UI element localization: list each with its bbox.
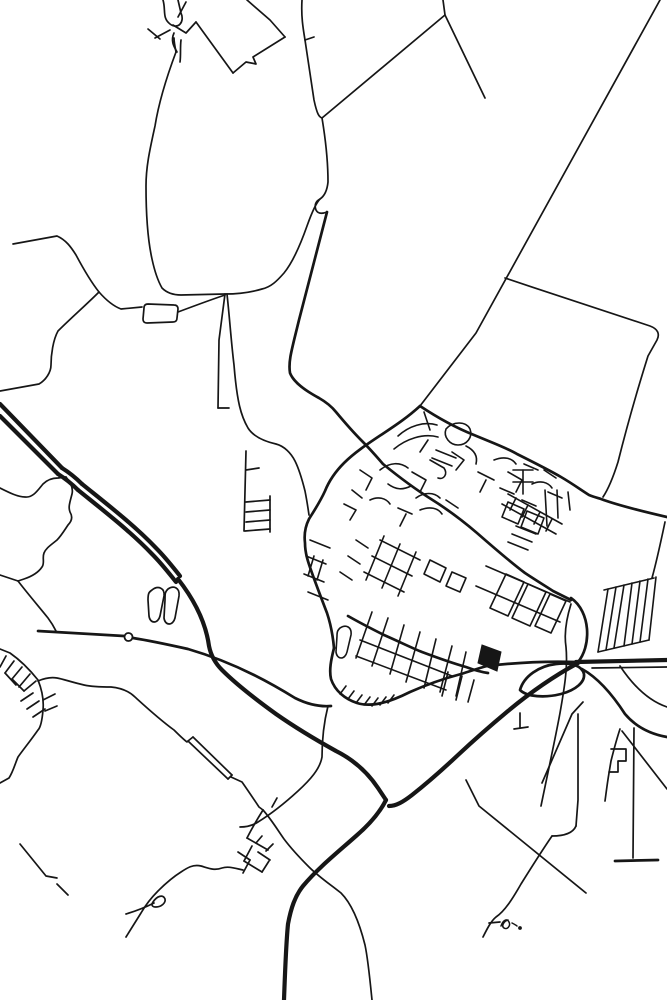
town-streets-path (340, 686, 346, 694)
town-streets-path (440, 646, 452, 692)
rural-roads-path (164, 587, 179, 624)
rural-roads-path (256, 836, 262, 843)
town-streets-path (348, 556, 360, 564)
rural-roads-path (143, 304, 178, 323)
town-streets-path (424, 639, 436, 688)
signature-glyph-path (512, 923, 517, 926)
rural-roads-path (245, 529, 270, 531)
rural-roads-path (0, 292, 99, 391)
rural-roads-path (152, 896, 165, 907)
map-canvas (0, 0, 667, 1000)
motorways-path (82, 484, 180, 576)
rural-roads-path (148, 29, 160, 39)
rural-roads-path (0, 477, 66, 497)
rural-roads-path (126, 903, 154, 914)
town-streets-path (640, 579, 648, 642)
rural-roads-path (246, 500, 270, 502)
town-streets-path (336, 626, 351, 658)
rural-roads-path (173, 22, 196, 33)
rural-roads-path (196, 22, 233, 73)
town-streets-path (372, 556, 412, 576)
rural-roads-path (244, 451, 246, 531)
motorways-path (576, 660, 667, 662)
rural-roads-path (246, 520, 270, 522)
rural-roads-path (19, 674, 30, 687)
town-streets-path (480, 480, 486, 492)
motorways-path (284, 800, 386, 1000)
town-streets-path (557, 490, 558, 518)
rural-roads-path (180, 40, 181, 62)
town-streets-path (356, 540, 368, 548)
rural-roads-path (443, 0, 485, 98)
town-streets-path (446, 500, 458, 508)
town-streets-path (420, 508, 442, 514)
town-streets-path (568, 492, 570, 510)
town-streets-path (445, 423, 470, 445)
town-streets-path (398, 508, 412, 514)
town-streets-path (382, 544, 400, 588)
rural-roads-path (18, 581, 56, 631)
town-streets-path (356, 656, 446, 690)
rural-roads-path (5, 673, 16, 685)
rural-roads-path (620, 666, 667, 707)
rural-roads-path (652, 522, 665, 578)
town-streets-path (649, 577, 656, 640)
town-streets-path (356, 695, 362, 703)
rural-roads-path (302, 0, 328, 213)
main-roads-path (571, 598, 587, 662)
rural-roads-path (505, 278, 658, 497)
town-streets-path (598, 640, 649, 652)
town-streets-path (466, 446, 477, 464)
roundabout (125, 633, 133, 641)
rural-roads-path (247, 810, 263, 838)
town-streets-path (478, 472, 494, 480)
town-streets-path (500, 488, 514, 494)
rural-roads-path (27, 701, 39, 709)
main-roads-path (289, 212, 383, 464)
town-streets-path (420, 440, 428, 452)
town-streets-path (366, 536, 384, 580)
rural-roads-path (489, 922, 500, 923)
main-roads-path (348, 616, 488, 673)
town-streets-path (632, 581, 640, 644)
rural-roads-path (0, 575, 18, 581)
rural-roads-path (0, 649, 43, 783)
rural-roads-path (246, 468, 259, 470)
rural-roads-path (24, 681, 36, 691)
town-streets-path (317, 560, 323, 580)
town-streets-path (508, 542, 528, 550)
rural-roads-path (188, 737, 193, 741)
layer-signature-glyph (501, 920, 517, 929)
town-streets-path (436, 450, 456, 458)
rural-roads-path (57, 884, 68, 895)
town-streets-path (468, 680, 474, 702)
rural-roads-path (188, 741, 228, 779)
rural-roads-path (12, 679, 24, 691)
town-streets-path (310, 540, 330, 548)
town-streets-path (512, 534, 532, 542)
motorways-path (78, 490, 176, 582)
rural-roads-path (218, 294, 225, 408)
map-figure (0, 0, 667, 1000)
rural-roads-path (193, 737, 232, 775)
town-streets-path (360, 470, 372, 490)
town-streets-path (545, 490, 547, 526)
town-streets-path (406, 632, 420, 682)
town-streets-path (398, 424, 437, 436)
rural-roads-path (420, 0, 660, 406)
glyph-dot (519, 927, 522, 930)
main-roads-path (383, 464, 571, 600)
rural-roads-path (322, 15, 445, 118)
rural-roads-path (12, 667, 22, 679)
rural-roads-path (126, 865, 243, 937)
town-streets-path (452, 452, 464, 470)
town-streets-path (446, 572, 466, 592)
rural-roads-path (174, 38, 176, 52)
rural-roads-path (231, 777, 263, 810)
rural-roads-path (592, 667, 667, 668)
town-streets-path (494, 458, 516, 464)
motorways-path (0, 404, 62, 468)
rural-roads-path (21, 693, 33, 701)
motorways-path (389, 663, 578, 806)
town-streets-path (624, 583, 632, 646)
rural-roads-path (18, 477, 72, 581)
town-streets-path (372, 618, 388, 666)
main-roads-path (582, 669, 667, 737)
town-streets-path (532, 482, 552, 488)
main-roads-path (133, 638, 331, 706)
rural-roads-path (305, 37, 314, 40)
town-streets-path (348, 691, 354, 699)
rural-roads-path (43, 694, 55, 700)
town-streets-path (394, 436, 438, 449)
town-streets-path (370, 498, 390, 504)
rural-roads-path (552, 826, 576, 836)
town-streets-path (352, 490, 362, 498)
rural-roads-path (38, 678, 187, 742)
town-streets-path (512, 584, 546, 626)
town-streets-path (340, 572, 352, 580)
layer-motorways (0, 404, 667, 1000)
rural-roads-path (0, 656, 6, 667)
rural-roads-path (148, 588, 164, 622)
town-streets-path (400, 514, 406, 526)
rural-roads-path (45, 706, 57, 711)
rural-roads-path (240, 706, 328, 827)
town-streets-path (548, 492, 562, 498)
town-streets-path (398, 552, 416, 596)
rural-roads-path (576, 714, 578, 826)
rural-roads-path (258, 852, 270, 860)
rural-roads-path (246, 510, 270, 512)
map-poster (0, 0, 667, 1000)
rural-roads-path (178, 295, 225, 312)
motorways-path (0, 416, 58, 474)
town-streets-path (356, 612, 372, 658)
rural-roads-path (514, 727, 528, 729)
town-streets-path (424, 560, 446, 582)
main-roads-path (615, 860, 658, 861)
town-streets-path (308, 592, 328, 600)
rural-roads-path (13, 236, 142, 309)
signature-glyph-path (501, 920, 510, 929)
rural-roads-path (272, 798, 277, 807)
town-streets-path (390, 625, 404, 674)
town-streets-path (424, 412, 430, 430)
rural-roads-path (247, 0, 285, 37)
rural-roads-path (20, 844, 57, 878)
town-streets-path (516, 526, 536, 534)
motorways-path (62, 468, 82, 484)
town-streets-path (521, 511, 544, 534)
rural-roads-path (622, 731, 667, 789)
town-streets-path (388, 484, 411, 489)
rural-roads-path (146, 52, 320, 295)
rural-roads-path (233, 37, 285, 73)
main-roads-path (38, 631, 124, 636)
rural-roads-path (266, 844, 273, 851)
town-streets-path (344, 504, 356, 520)
rural-roads-path (5, 661, 14, 673)
rural-roads-path (262, 861, 269, 872)
